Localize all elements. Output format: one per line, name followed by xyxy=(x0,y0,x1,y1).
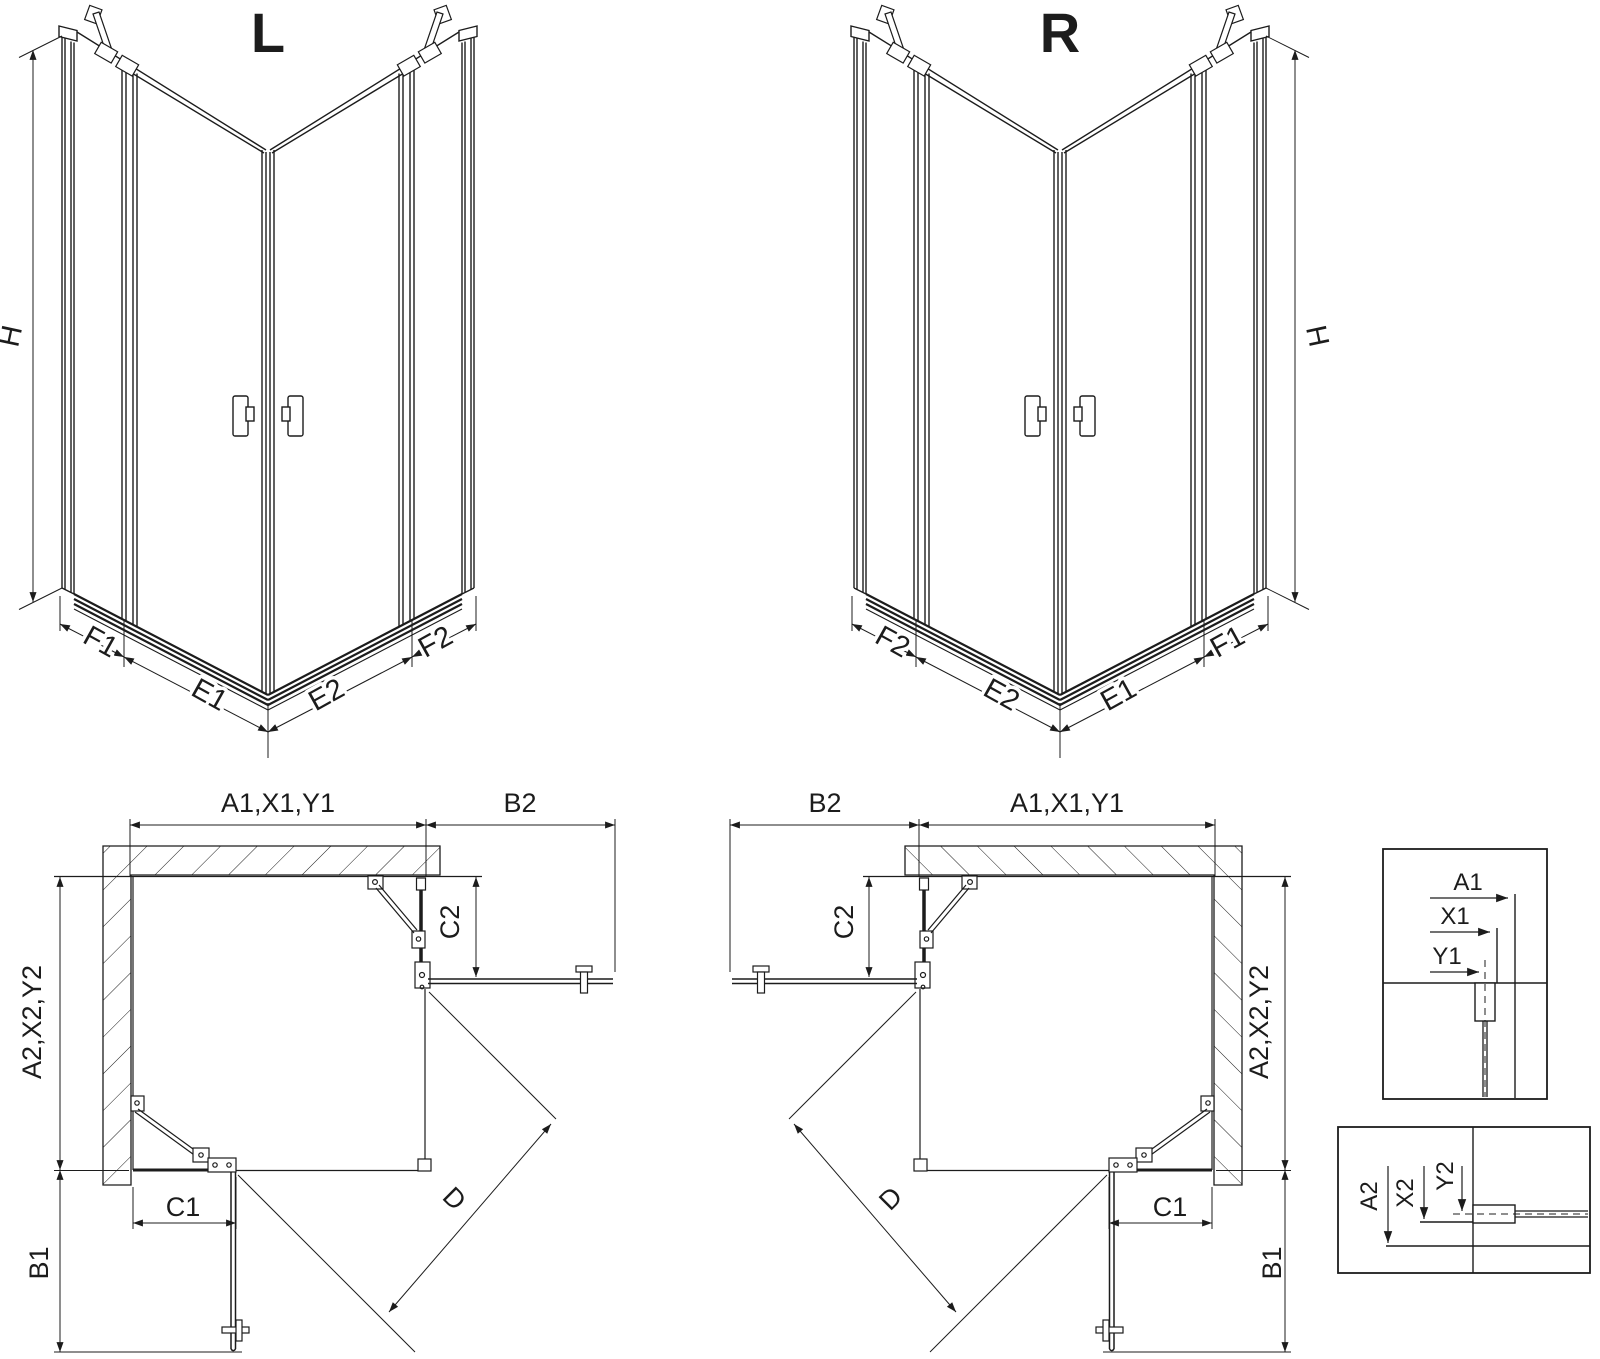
variant-title-right: R xyxy=(1040,1,1080,64)
detail-a1-label: A1 xyxy=(1453,869,1482,896)
plan-art-right xyxy=(730,819,1291,1352)
plan-l-b1: B1 xyxy=(24,1246,54,1279)
plan-l-side-span: A2,X2,Y2 xyxy=(17,965,47,1079)
plan-r-c1: C1 xyxy=(1153,1192,1188,1222)
detail-a2-label: A2 xyxy=(1356,1181,1383,1210)
plan-r-diagonal: D xyxy=(873,1181,908,1216)
plan-r-top-span: A1,X1,Y1 xyxy=(1010,788,1124,818)
plan-view-right: B2 A1,X1,Y1 C2 A2,X2,Y2 B1 C1 D xyxy=(730,788,1291,1352)
variant-title-left: L xyxy=(251,1,285,64)
detail-box-wall-a: A1 X1 Y1 xyxy=(1383,849,1547,1099)
detail-x1-label: X1 xyxy=(1440,903,1469,930)
plan-r-b1: B1 xyxy=(1257,1246,1287,1279)
dim-e2-right: E2 xyxy=(978,673,1025,718)
shower-enclosure-diagram: L H F1 E1 E2 F2 R H F2 E2 E1 F1 A1,X1,Y1… xyxy=(0,0,1600,1359)
dim-e2-left: E2 xyxy=(303,673,350,718)
plan-l-b2: B2 xyxy=(503,788,536,818)
dim-height-right: H xyxy=(1299,323,1335,350)
plan-l-top-span: A1,X1,Y1 xyxy=(221,788,335,818)
iso-view-right: R H F2 E2 E1 F1 xyxy=(851,1,1335,758)
plan-l-c1: C1 xyxy=(166,1192,201,1222)
dim-e1-left: E1 xyxy=(186,673,233,718)
plan-view-left: A1,X1,Y1 B2 C2 A2,X2,Y2 B1 C1 D xyxy=(17,788,615,1352)
detail-y1-label: Y1 xyxy=(1432,943,1461,970)
dim-e1-right: E1 xyxy=(1095,673,1142,718)
plan-r-b2: B2 xyxy=(808,788,841,818)
dim-height-left: H xyxy=(0,323,29,350)
plan-l-diagonal: D xyxy=(437,1181,472,1216)
iso-view-left: L H F1 E1 E2 F2 xyxy=(0,1,477,758)
detail-box-wall-b: A2 X2 Y2 xyxy=(1338,1127,1590,1273)
detail-x2-label: X2 xyxy=(1392,1178,1419,1207)
detail-y2-label: Y2 xyxy=(1432,1161,1459,1190)
plan-l-c2: C2 xyxy=(435,905,465,940)
plan-r-side-span: A2,X2,Y2 xyxy=(1244,965,1274,1079)
plan-r-c2: C2 xyxy=(829,905,859,940)
technical-drawing-page: L H F1 E1 E2 F2 R H F2 E2 E1 F1 A1,X1,Y1… xyxy=(0,0,1600,1359)
plan-art-left xyxy=(54,819,615,1352)
